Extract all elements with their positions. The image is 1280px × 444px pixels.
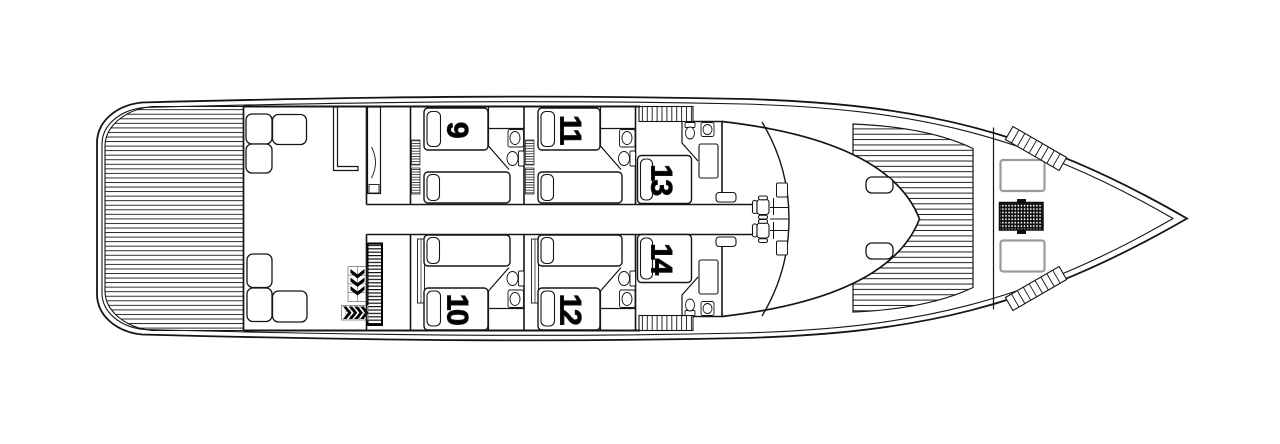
sink-icon xyxy=(510,132,520,145)
pillow xyxy=(541,291,555,326)
sink-icon xyxy=(703,125,712,135)
sink-icon xyxy=(510,293,520,306)
pillow xyxy=(541,175,554,201)
sun-pad-bottom xyxy=(1001,241,1045,272)
helm-step xyxy=(716,237,736,247)
staircase xyxy=(368,244,383,326)
wardrobe-comb xyxy=(526,168,535,194)
wardrobe-comb xyxy=(412,140,421,165)
toilet-tank xyxy=(519,151,525,166)
cabin-12-label: 12 xyxy=(554,294,587,325)
wardrobe-comb xyxy=(526,140,535,165)
deck-hatch xyxy=(866,243,893,259)
toilet-tank xyxy=(630,271,636,286)
pillow xyxy=(541,238,554,264)
cabin-13-label: 13 xyxy=(645,164,678,195)
side-ladder-top xyxy=(639,107,693,122)
toilet-icon xyxy=(507,152,518,166)
toilet-icon xyxy=(619,272,630,286)
anchor-grate xyxy=(1000,199,1044,234)
sink-icon xyxy=(703,304,712,314)
sink-icon xyxy=(622,293,632,306)
aft-deck xyxy=(105,107,244,331)
toilet-tank xyxy=(630,151,636,166)
toilet-icon xyxy=(686,299,695,311)
toilet-tank xyxy=(519,271,525,286)
pillow xyxy=(427,112,441,147)
aft-deck-planking xyxy=(105,107,244,331)
sink-icon xyxy=(622,132,632,145)
pillow xyxy=(427,175,440,201)
closet xyxy=(699,260,718,294)
toilet-icon xyxy=(507,272,518,286)
closet xyxy=(699,144,718,178)
toilet-icon xyxy=(619,152,630,166)
pillow xyxy=(427,238,440,264)
salon-counter xyxy=(368,107,381,194)
toilet-icon xyxy=(686,127,695,139)
side-ladder-bottom xyxy=(639,316,693,331)
pillow xyxy=(541,112,555,147)
cabin-14-label: 14 xyxy=(645,243,678,275)
cabin-11-label: 11 xyxy=(554,115,587,145)
deck-plan: 9 10 11 xyxy=(0,0,1280,444)
deck-plan-canvas: 9 10 11 xyxy=(0,0,1280,444)
sun-pad-top xyxy=(1001,160,1045,191)
wardrobe-comb xyxy=(412,168,421,194)
cabin-9-label: 9 xyxy=(441,122,474,138)
pillow xyxy=(427,291,441,326)
deck-hatch xyxy=(866,177,893,193)
cabin-10-label: 10 xyxy=(441,294,474,325)
helm-step xyxy=(716,193,736,203)
